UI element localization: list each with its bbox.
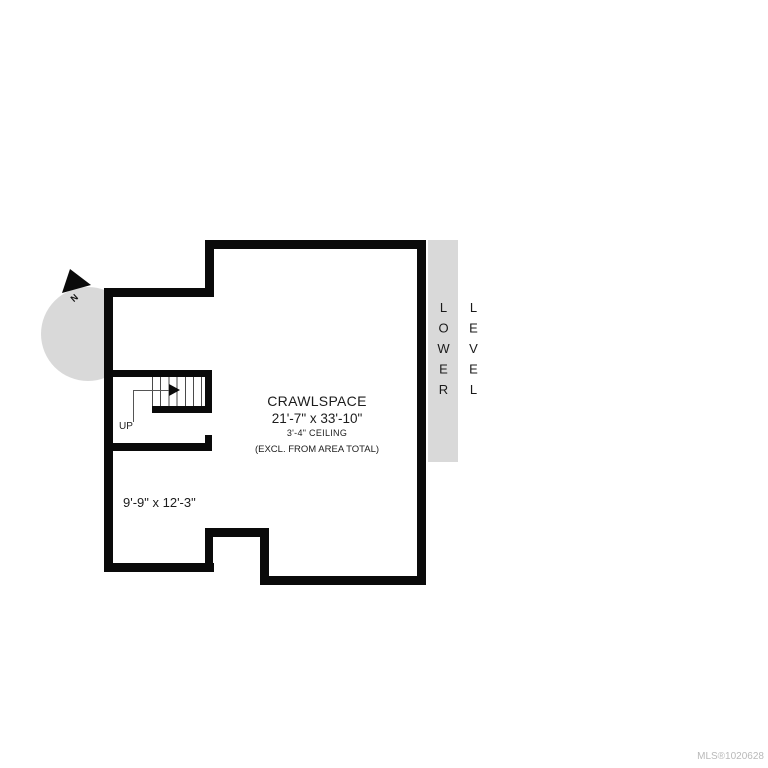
mls-watermark: MLS®1020628 <box>697 751 764 762</box>
wall-upper-left-horizontal <box>104 288 214 297</box>
divider-wall-end-cap <box>205 435 212 451</box>
wall-left <box>104 288 113 572</box>
wall-top <box>205 240 426 249</box>
wall-right <box>417 240 426 585</box>
crawlspace-room-name: CRAWLSPACE <box>255 393 379 410</box>
north-arrow-icon <box>55 264 100 299</box>
wall-bottom-left <box>104 563 214 572</box>
stair-arrow-head-icon <box>169 384 180 396</box>
divider-wall <box>107 443 212 451</box>
lower-left-room-dimensions: 9'-9" x 12'-3" <box>123 495 196 510</box>
lower-level-banner: LOWER LEVEL <box>428 240 458 462</box>
stair-arrow-line-vertical <box>133 390 134 422</box>
stair-arrow-line-horizontal <box>133 390 171 391</box>
stair-wall-top <box>108 370 212 377</box>
crawlspace-area-note: (EXCL. FROM AREA TOTAL) <box>255 444 379 456</box>
wall-bottom-right <box>260 576 426 585</box>
stairs-up-label: UP <box>119 421 133 432</box>
crawlspace-ceiling-height: 3'-4" CEILING <box>255 427 379 440</box>
stair-wall-inner <box>152 406 212 413</box>
crawlspace-label-block: CRAWLSPACE 21'-7" x 33'-10" 3'-4" CEILIN… <box>255 393 379 456</box>
crawlspace-dimensions: 21'-7" x 33'-10" <box>255 410 379 427</box>
